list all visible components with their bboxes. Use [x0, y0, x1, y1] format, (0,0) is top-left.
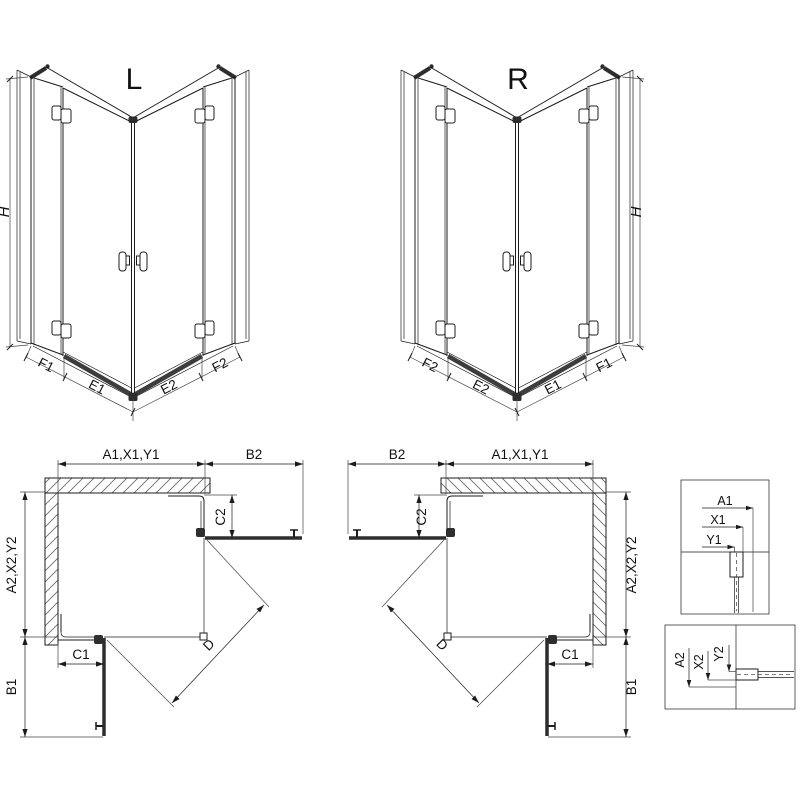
- plan-view-right: A1,X1,Y1 B2 A2,X2,Y2 B1 C2 C1 D: [348, 447, 639, 737]
- iso-view-left: L H F1 E1 E2 F2: [0, 63, 249, 421]
- detail-depth-dim-y2: Y2: [712, 646, 726, 661]
- detail-width-dim-a1: A1: [717, 494, 732, 508]
- plan-left-fixed-side-label: C2: [213, 508, 228, 525]
- plan-left-door-side-label: B2: [246, 447, 263, 462]
- plan-view-left: A1,X1,Y1 B2 A2,X2,Y2 B1 C2 C1 D: [4, 447, 303, 737]
- iso-view-right: R H F2 E2 E1 F1: [401, 63, 645, 421]
- plan-left-width-label: A1,X1,Y1: [102, 447, 159, 462]
- detail-depth-dim-x2: X2: [692, 654, 706, 669]
- iso-left-height-label: H: [0, 206, 13, 217]
- drawing-page: L H F1 E1 E2 F2 R H F2 E2 E1 F1 A1,X1,Y1…: [0, 0, 800, 800]
- plan-left-door-bottom-label: B1: [4, 679, 19, 696]
- technical-drawing-canvas: L H F1 E1 E2 F2 R H F2 E2 E1 F1 A1,X1,Y1…: [0, 0, 800, 800]
- detail-depth-measurement: A2 X2 Y2: [665, 625, 795, 709]
- plan-right-fixed-side-label: C2: [414, 508, 429, 525]
- iso-right-segment-f1: F1: [594, 355, 615, 376]
- plan-right-door-side-label: B2: [389, 447, 406, 462]
- plan-left-depth-label: A2,X2,Y2: [4, 536, 19, 593]
- plan-left-lineart: [20, 460, 303, 737]
- plan-right-depth-label: A2,X2,Y2: [624, 536, 639, 593]
- detail-depth-dim-a2: A2: [673, 652, 687, 667]
- plan-right-fixed-bottom-label: C1: [561, 647, 578, 662]
- plan-right-lineart: [348, 460, 631, 737]
- detail-width-measurement: A1 X1 Y1: [681, 480, 769, 614]
- iso-right-height-label: H: [628, 206, 645, 217]
- detail-width-dim-y1: Y1: [706, 533, 721, 547]
- iso-left-title: L: [126, 63, 143, 96]
- iso-left-segment-f1: F1: [36, 355, 57, 376]
- detail-width-dim-x1: X1: [710, 513, 725, 527]
- plan-left-fixed-bottom-label: C1: [72, 647, 89, 662]
- iso-right-segment-f2: F2: [420, 355, 441, 376]
- iso-left-segment-f2: F2: [210, 355, 231, 376]
- plan-right-door-bottom-label: B1: [624, 679, 639, 696]
- iso-right-title: R: [507, 63, 529, 96]
- plan-right-width-label: A1,X1,Y1: [491, 447, 548, 462]
